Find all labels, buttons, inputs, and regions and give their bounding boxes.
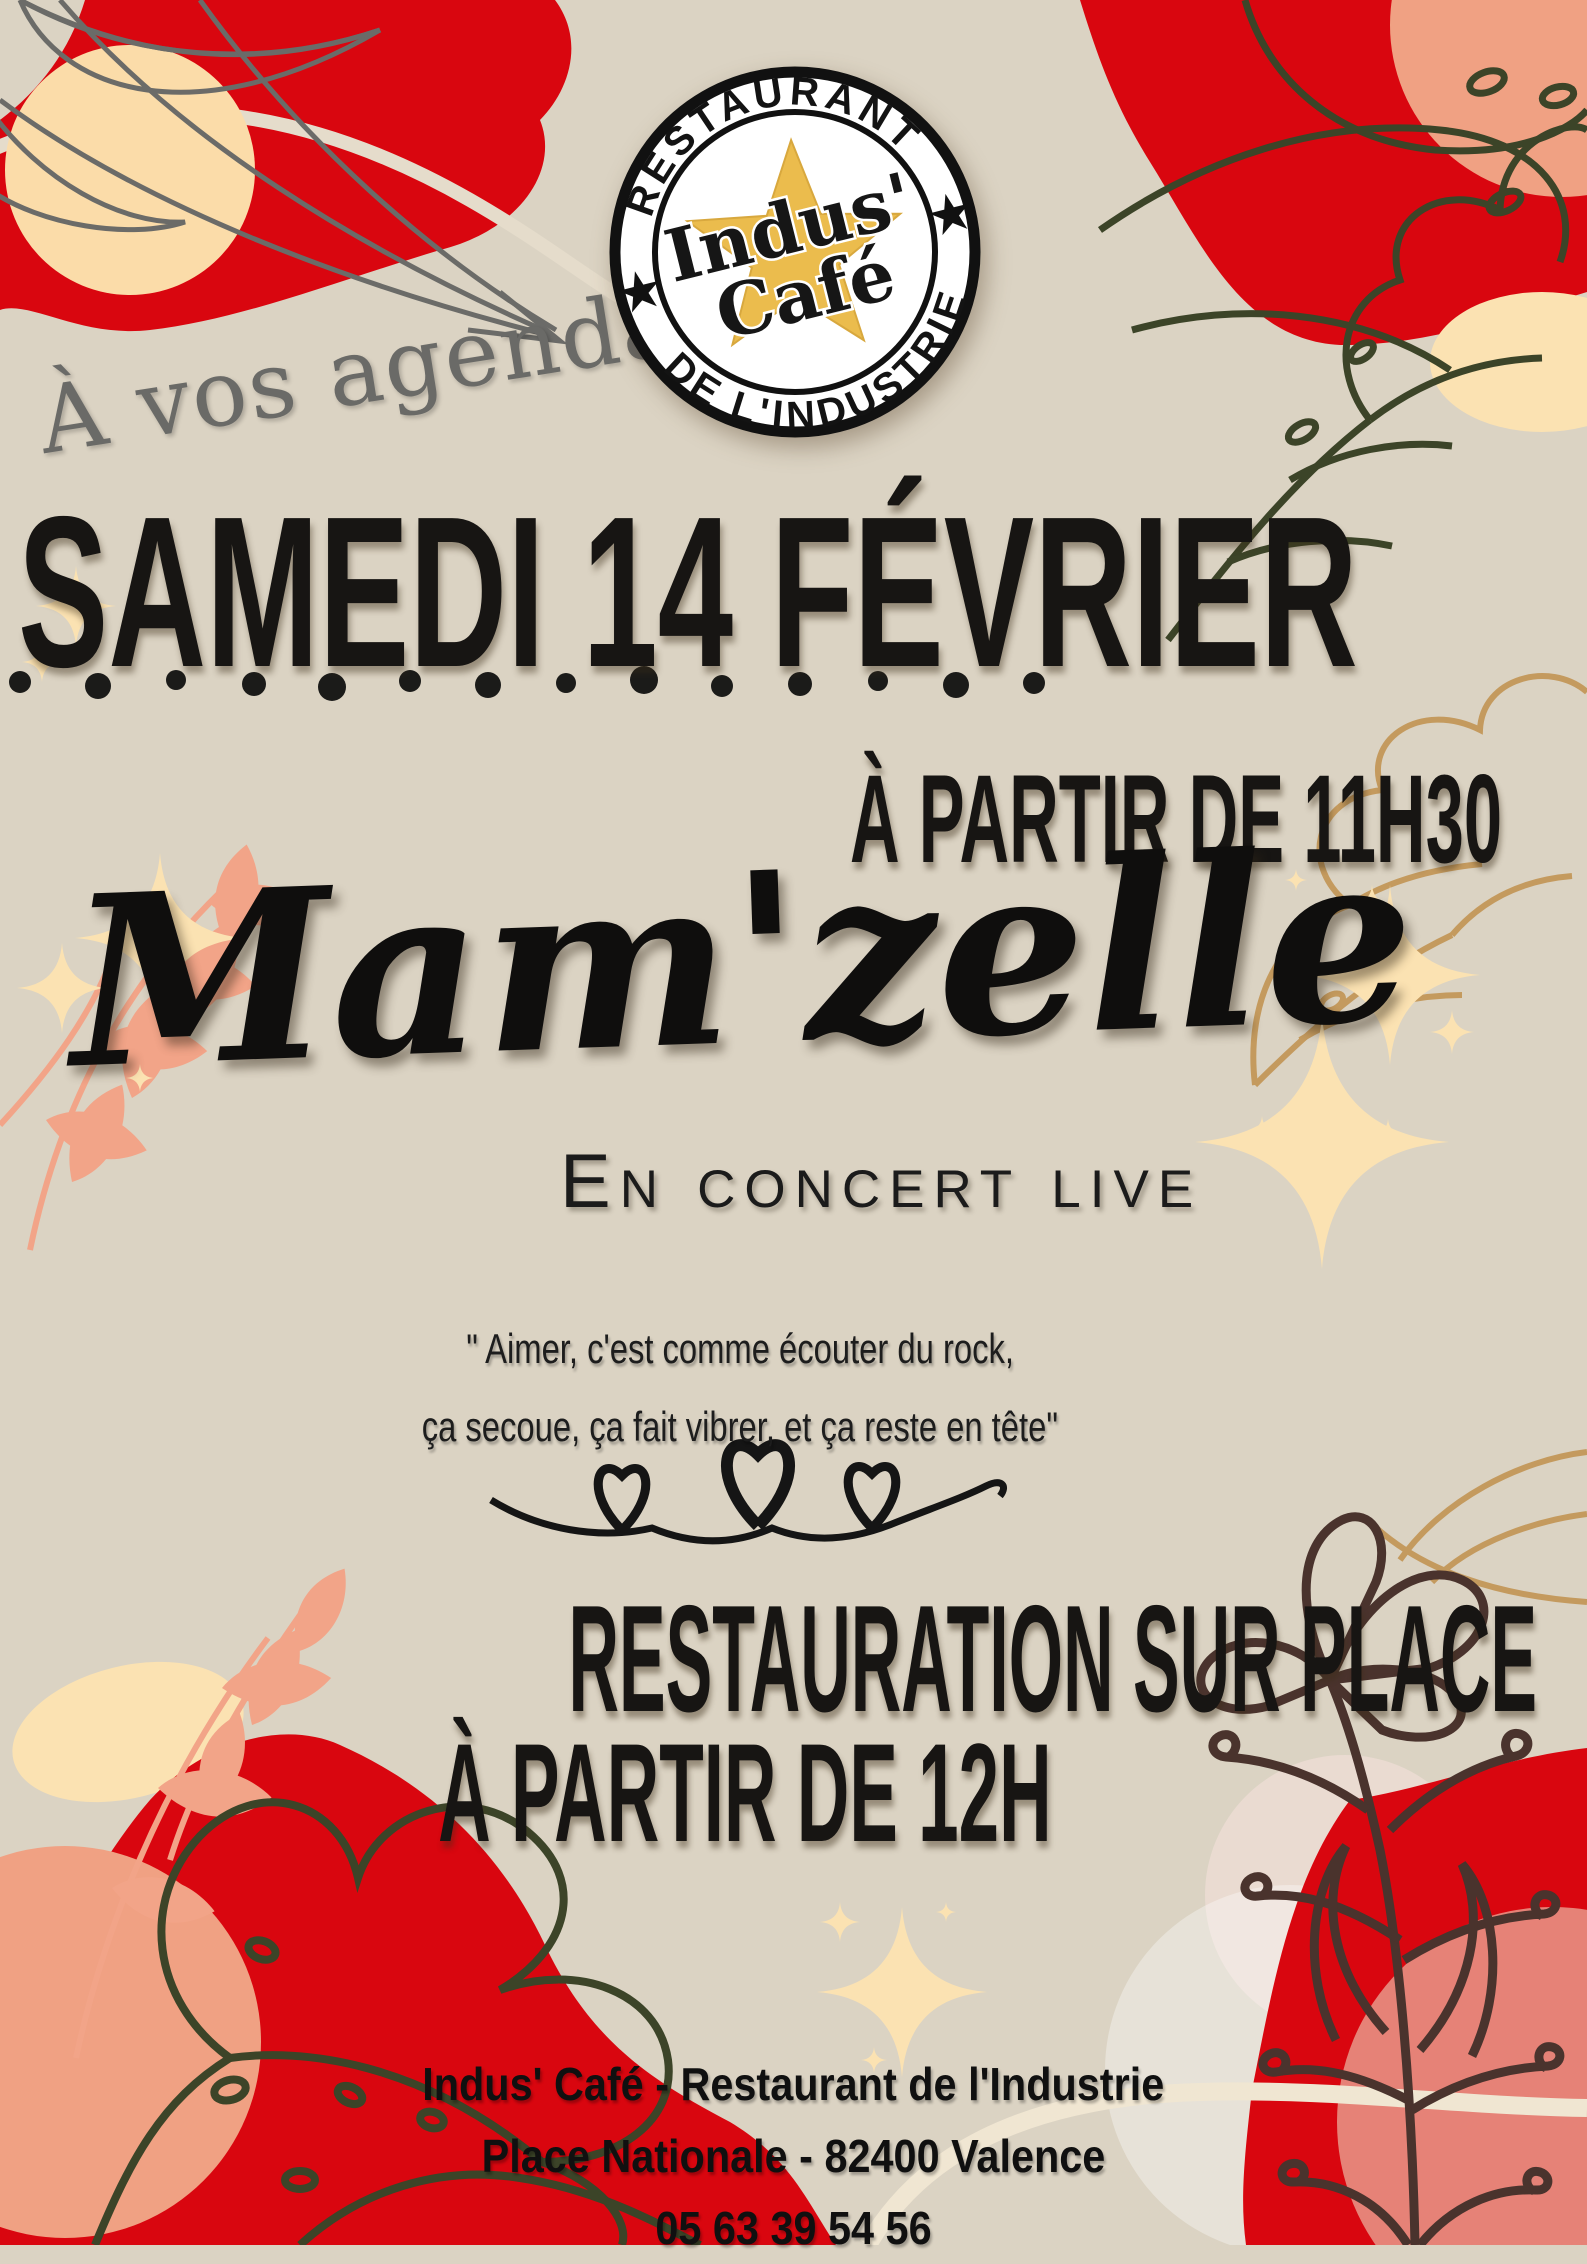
- quote-line1: " Aimer, c'est comme écouter du rock,: [340, 1310, 1140, 1388]
- footer-line3: 05 63 39 54 56: [0, 2192, 1587, 2264]
- footer: Indus' Café - Restaurant de l'Industrie …: [0, 2048, 1587, 2264]
- artist-name: Mam'zelle: [66, 799, 1419, 1122]
- peach-circle: [5, 45, 255, 295]
- quote-line2: ça secoue, ça fait vibrer, et ça reste e…: [340, 1388, 1140, 1466]
- indus-cafe-logo: RESTAURANT DE L'INDUSTRIE ★ ★ Indus' Caf…: [585, 42, 1005, 462]
- date-title: SAMEDI 14 FÉVRIER: [18, 468, 1587, 716]
- restauration-line2: À PARTIR DE 12H: [0, 1712, 1490, 1874]
- quote: " Aimer, c'est comme écouter du rock, ça…: [340, 1310, 1140, 1466]
- footer-line2: Place Nationale - 82400 Valence: [0, 2120, 1587, 2192]
- footer-line1: Indus' Café - Restaurant de l'Industrie: [0, 2048, 1587, 2120]
- concert-subtitle: En concert live: [560, 1138, 1202, 1225]
